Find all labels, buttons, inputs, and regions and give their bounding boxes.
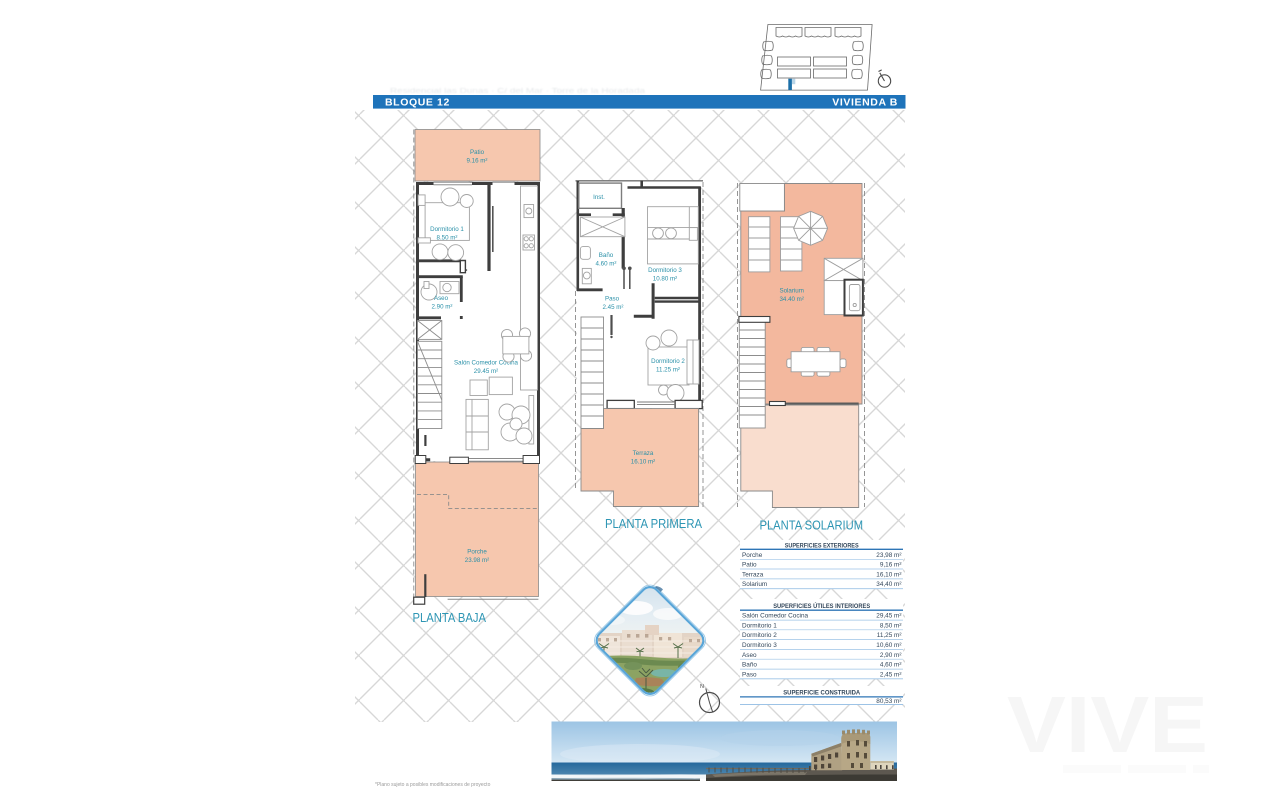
svg-text:Terraza: Terraza [633, 450, 654, 457]
svg-text:23,98 m²: 23,98 m² [876, 552, 901, 559]
svg-text:Dormitorio 2: Dormitorio 2 [651, 358, 685, 365]
svg-text:29,45 m²: 29,45 m² [876, 613, 901, 620]
svg-text:Residencial las Dunas · C/ del: Residencial las Dunas · C/ del Mar · Tor… [390, 88, 645, 95]
svg-text:PLANTA BAJA: PLANTA BAJA [413, 610, 487, 625]
svg-text:Paso: Paso [605, 296, 620, 303]
svg-text:SUPERFICIES ÚTILES INTERIORES: SUPERFICIES ÚTILES INTERIORES [773, 601, 871, 610]
svg-text:VIVIENDA B: VIVIENDA B [832, 97, 898, 109]
svg-text:PLANTA SOLARIUM: PLANTA SOLARIUM [760, 518, 864, 533]
svg-text:Baño: Baño [742, 662, 757, 669]
svg-text:Terraza: Terraza [742, 571, 764, 578]
svg-text:23.98 m²: 23.98 m² [465, 557, 489, 564]
svg-text:Baño: Baño [599, 252, 614, 259]
svg-text:8.50 m²: 8.50 m² [437, 235, 458, 242]
svg-text:Dormitorio 3: Dormitorio 3 [648, 267, 682, 274]
svg-text:2,45 m²: 2,45 m² [880, 671, 902, 678]
svg-text:Paso: Paso [742, 671, 757, 678]
svg-text:BLOQUE 12: BLOQUE 12 [385, 97, 450, 109]
svg-text:8,50 m²: 8,50 m² [880, 622, 902, 629]
svg-text:SUPERFICIE CONSTRUIDA: SUPERFICIE CONSTRUIDA [783, 689, 860, 696]
svg-text:Porche: Porche [467, 549, 487, 556]
svg-text:N: N [700, 684, 704, 690]
svg-text:2,90 m²: 2,90 m² [880, 652, 902, 659]
svg-text:4,60 m²: 4,60 m² [880, 662, 902, 669]
svg-text:34.40 m²: 34.40 m² [779, 296, 803, 303]
svg-text:Aseo: Aseo [742, 652, 757, 659]
svg-text:Dormitorio 2: Dormitorio 2 [742, 632, 777, 639]
svg-text:*Plano sujeto a posibles modif: *Plano sujeto a posibles modificaciones … [375, 782, 491, 788]
svg-text:Patio: Patio [470, 149, 485, 156]
svg-text:11,25 m²: 11,25 m² [877, 632, 902, 639]
svg-text:Dormitorio 1: Dormitorio 1 [742, 622, 777, 629]
svg-text:16,10 m²: 16,10 m² [876, 571, 901, 578]
svg-text:2.45 m²: 2.45 m² [603, 304, 624, 311]
svg-text:Aseo: Aseo [434, 295, 449, 302]
svg-text:10,60 m²: 10,60 m² [876, 642, 901, 649]
svg-text:Salón Comedor Cocina: Salón Comedor Cocina [742, 613, 809, 620]
svg-text:34,40 m²: 34,40 m² [876, 581, 901, 588]
svg-text:10.80 m²: 10.80 m² [653, 276, 677, 283]
svg-text:Solarium: Solarium [742, 581, 767, 588]
svg-text:80,53 m²: 80,53 m² [876, 698, 901, 705]
svg-text:9.16 m²: 9.16 m² [467, 158, 488, 165]
svg-text:Porche: Porche [742, 552, 763, 559]
svg-text:VIVE: VIVE [1007, 680, 1208, 769]
svg-text:2.90 m²: 2.90 m² [432, 304, 453, 311]
svg-text:29.45 m²: 29.45 m² [474, 368, 498, 375]
svg-text:Patio: Patio [742, 562, 757, 569]
svg-text:Solarium: Solarium [779, 288, 803, 295]
svg-text:11.25 m²: 11.25 m² [656, 367, 680, 374]
svg-text:PLANTA PRIMERA: PLANTA PRIMERA [605, 516, 702, 531]
svg-text:16.10 m²: 16.10 m² [631, 459, 655, 466]
svg-text:9,16 m²: 9,16 m² [880, 562, 902, 569]
svg-text:Inst.: Inst. [593, 194, 605, 201]
svg-text:Dormitorio 1: Dormitorio 1 [430, 226, 464, 233]
svg-text:Dormitorio 3: Dormitorio 3 [742, 642, 777, 649]
svg-text:4.60 m²: 4.60 m² [596, 261, 617, 268]
